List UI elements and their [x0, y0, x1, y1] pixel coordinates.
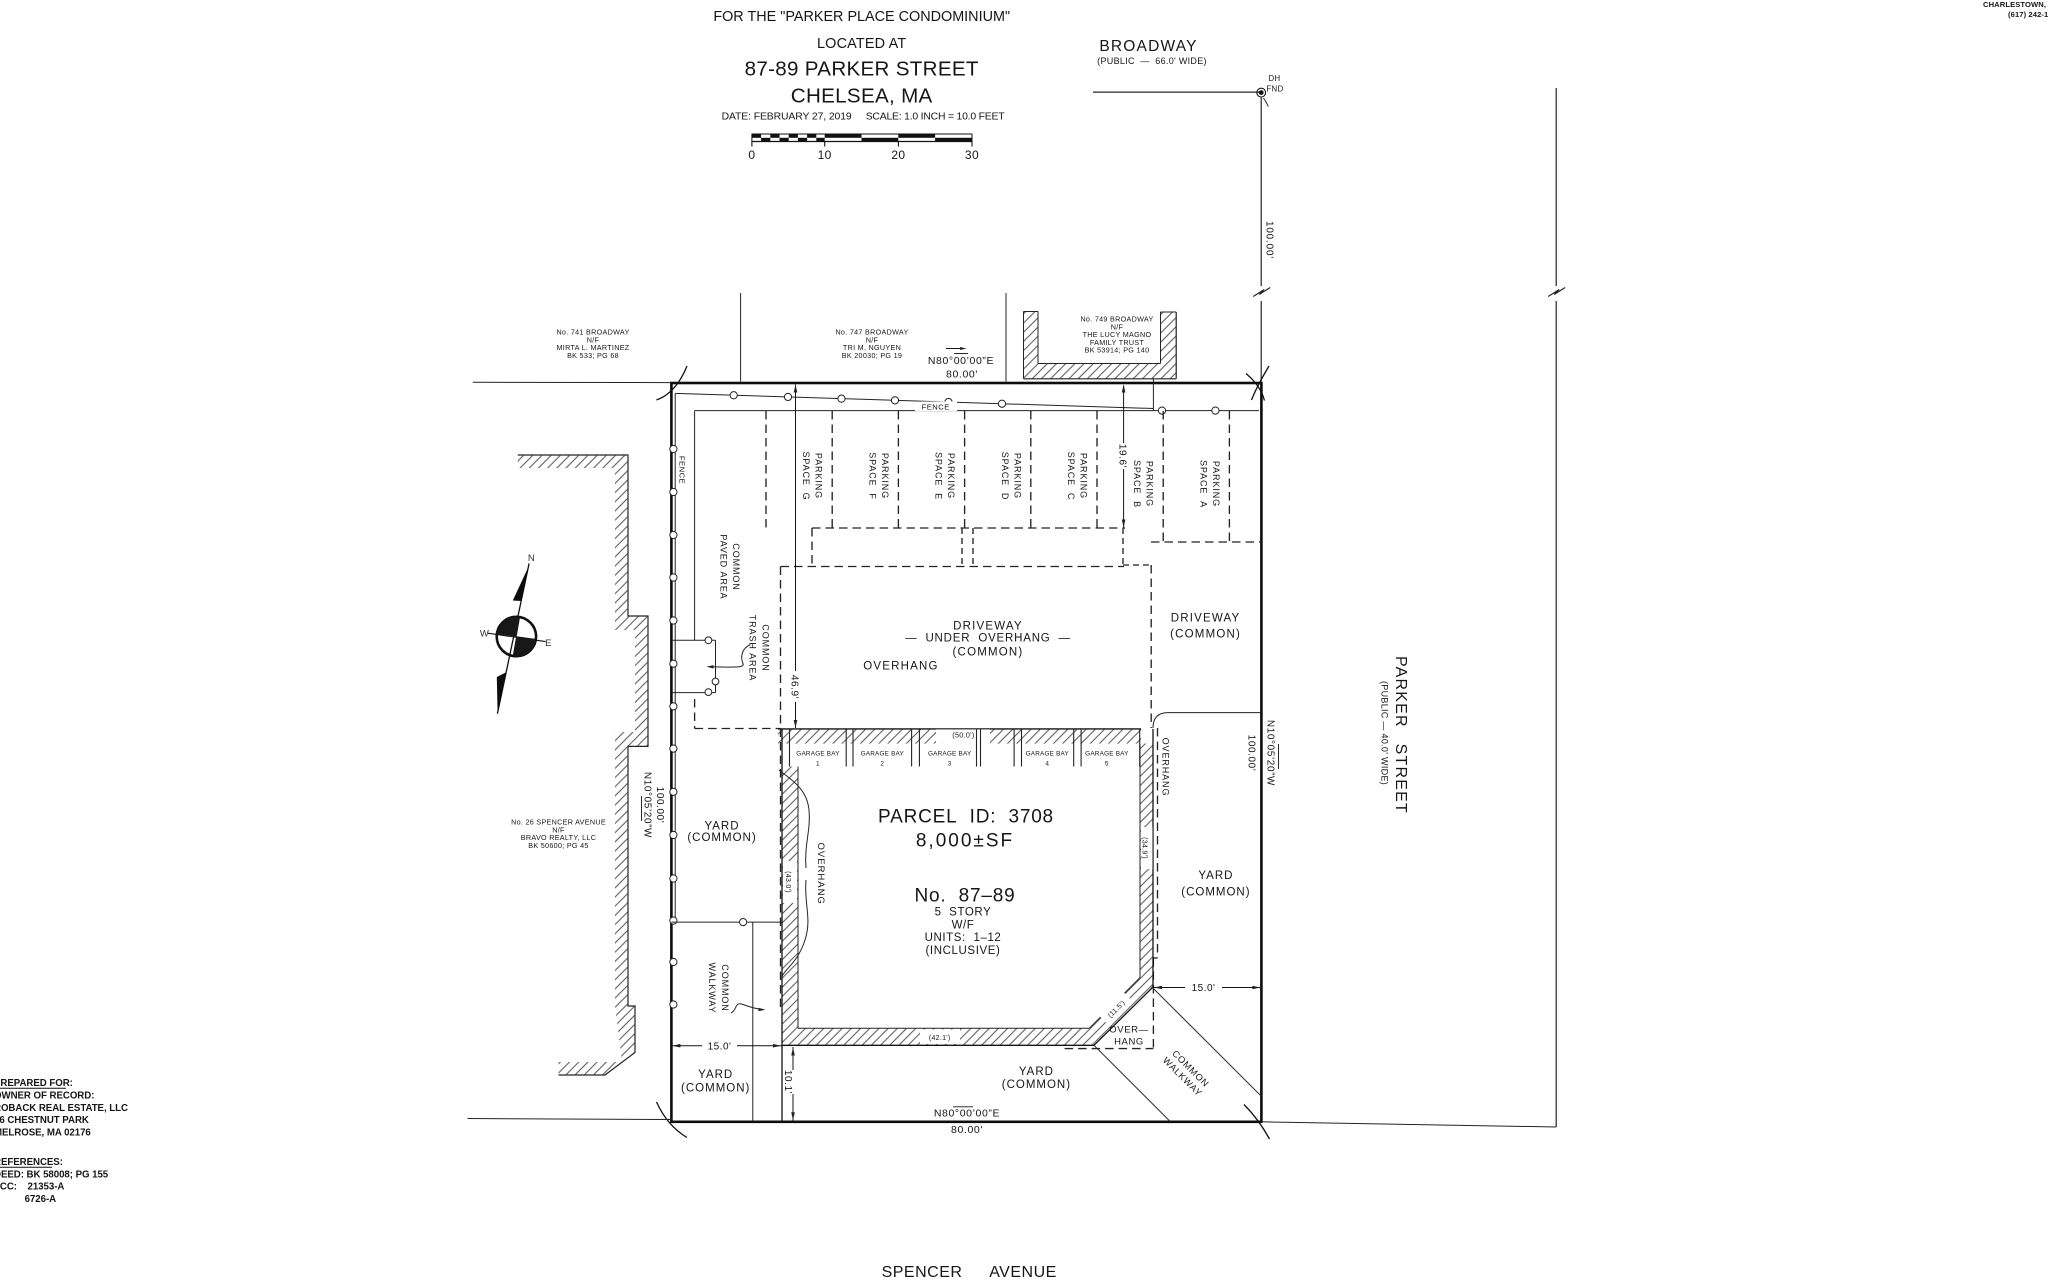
- svg-text:SPACE E: SPACE E: [934, 452, 944, 500]
- svg-text:N10°05’20”W: N10°05’20”W: [1265, 720, 1276, 786]
- svg-text:(COMMON): (COMMON): [1181, 887, 1250, 899]
- svg-text:SPENCER: SPENCER: [882, 1264, 963, 1280]
- svg-text:CHELSEA, MA: CHELSEA, MA: [791, 85, 933, 108]
- svg-text:26 CHESTNUT PARK: 26 CHESTNUT PARK: [0, 1115, 89, 1126]
- svg-text:AVENUE: AVENUE: [989, 1264, 1057, 1280]
- svg-text:COMMON: COMMON: [720, 964, 730, 1011]
- svg-text:DRIVEWAY: DRIVEWAY: [1171, 612, 1241, 624]
- svg-text:(42.1'): (42.1'): [929, 1035, 951, 1042]
- svg-text:80.00': 80.00': [951, 1124, 983, 1136]
- svg-text:COMMON: COMMON: [731, 543, 741, 590]
- svg-text:(COMMON): (COMMON): [1002, 1079, 1071, 1091]
- svg-text:YARD: YARD: [704, 820, 739, 832]
- svg-text:0: 0: [748, 148, 755, 162]
- svg-text:(COMMON): (COMMON): [687, 832, 756, 844]
- svg-text:(PUBLIC — 66.0' WIDE): (PUBLIC — 66.0' WIDE): [1097, 56, 1207, 66]
- svg-text:W/F: W/F: [952, 920, 975, 932]
- svg-text:OVERHANG: OVERHANG: [1161, 738, 1171, 797]
- svg-text:PAVED AREA: PAVED AREA: [719, 534, 729, 599]
- svg-text:(617) 242-1313: (617) 242-1313: [2008, 10, 2048, 19]
- svg-text:PARKING: PARKING: [1079, 453, 1089, 499]
- svg-text:SCALE: 1.0 INCH = 10.0 FEET: SCALE: 1.0 INCH = 10.0 FEET: [866, 112, 1006, 123]
- svg-text:(34.9'): (34.9'): [1141, 837, 1148, 859]
- svg-text:HANG: HANG: [1114, 1036, 1144, 1047]
- svg-text:GARAGE BAY: GARAGE BAY: [861, 751, 905, 758]
- svg-text:PARKING: PARKING: [946, 453, 956, 499]
- svg-text:15.0': 15.0': [1192, 983, 1216, 994]
- svg-text:CHARLESTOWN, MA: CHARLESTOWN, MA: [1983, 0, 2048, 9]
- svg-text:6726-A: 6726-A: [25, 1194, 57, 1205]
- svg-text:(COMMON): (COMMON): [953, 647, 1024, 659]
- svg-text:1: 1: [816, 761, 820, 768]
- svg-text:SPACE A: SPACE A: [1198, 460, 1208, 508]
- svg-text:YARD: YARD: [1019, 1066, 1054, 1078]
- svg-text:DRIVEWAY: DRIVEWAY: [953, 620, 1023, 632]
- svg-text:W: W: [480, 629, 489, 640]
- svg-text:3: 3: [948, 761, 952, 768]
- svg-text:REFERENCES:: REFERENCES:: [0, 1157, 63, 1168]
- svg-text:4: 4: [1045, 761, 1049, 768]
- svg-text:OVERHANG: OVERHANG: [863, 661, 938, 673]
- svg-text:PARKING: PARKING: [1211, 461, 1221, 507]
- svg-text:YARD: YARD: [698, 1069, 733, 1081]
- svg-text:— UNDER OVERHANG —: — UNDER OVERHANG —: [905, 633, 1071, 645]
- svg-text:YARD: YARD: [1198, 870, 1233, 882]
- svg-text:100.00': 100.00': [1263, 221, 1274, 259]
- svg-text:(INCLUSIVE): (INCLUSIVE): [926, 945, 1001, 957]
- svg-text:(43.0'): (43.0'): [784, 871, 791, 893]
- svg-text:PARKING: PARKING: [814, 453, 824, 499]
- svg-text:(50.0'): (50.0'): [952, 731, 974, 740]
- svg-text:DH: DH: [1268, 74, 1280, 83]
- svg-text:STREET: STREET: [1392, 744, 1409, 814]
- svg-text:LOCATED AT: LOCATED AT: [817, 36, 906, 52]
- svg-text:SPACE C: SPACE C: [1066, 452, 1076, 501]
- svg-text:N: N: [528, 553, 535, 564]
- svg-text:19.6': 19.6': [1117, 444, 1128, 468]
- svg-text:87-89 PARKER STREET: 87-89 PARKER STREET: [745, 58, 979, 81]
- svg-text:No. 87–89: No. 87–89: [915, 886, 1016, 907]
- svg-text:15.0': 15.0': [708, 1041, 732, 1052]
- svg-text:PARKING: PARKING: [1145, 461, 1155, 507]
- svg-text:5 STORY: 5 STORY: [935, 906, 992, 918]
- svg-text:30: 30: [965, 148, 979, 162]
- svg-text:SPACE B: SPACE B: [1132, 460, 1142, 508]
- svg-text:80.00': 80.00': [946, 369, 978, 381]
- svg-text:DATE: FEBRUARY 27, 2019: DATE: FEBRUARY 27, 2019: [722, 112, 852, 123]
- svg-text:2: 2: [880, 761, 884, 768]
- svg-text:DEED: BK 58008; PG 155: DEED: BK 58008; PG 155: [0, 1169, 109, 1180]
- svg-text:N80°00’00”E: N80°00’00”E: [934, 1108, 1000, 1120]
- svg-text:10: 10: [818, 148, 832, 162]
- svg-text:BK 533; PG 68: BK 533; PG 68: [567, 351, 619, 360]
- svg-text:GARAGE BAY: GARAGE BAY: [928, 751, 972, 758]
- svg-text:WALKWAY: WALKWAY: [707, 963, 717, 1014]
- svg-text:PREPARED FOR:: PREPARED FOR:: [0, 1078, 73, 1089]
- svg-text:BK 20030; PG 19: BK 20030; PG 19: [842, 351, 902, 360]
- svg-text:100.00': 100.00': [1246, 735, 1257, 772]
- svg-text:PARKING: PARKING: [880, 453, 890, 499]
- svg-text:GARAGE BAY: GARAGE BAY: [796, 751, 840, 758]
- svg-text:LCC: 21353-A: LCC: 21353-A: [0, 1182, 64, 1193]
- svg-text:SPACE G: SPACE G: [801, 451, 811, 500]
- svg-text:GARAGE BAY: GARAGE BAY: [1026, 751, 1070, 758]
- svg-text:8,000±SF: 8,000±SF: [916, 830, 1014, 851]
- svg-text:PARKER: PARKER: [1392, 656, 1409, 728]
- svg-text:FENCE: FENCE: [922, 403, 950, 412]
- svg-text:SPACE F: SPACE F: [867, 452, 877, 500]
- svg-text:N10°05’20”W: N10°05’20”W: [641, 772, 652, 838]
- svg-text:ROBACK REAL ESTATE, LLC: ROBACK REAL ESTATE, LLC: [0, 1103, 128, 1114]
- svg-text:COMMON: COMMON: [761, 624, 771, 671]
- svg-text:BROADWAY: BROADWAY: [1099, 38, 1197, 55]
- svg-text:(COMMON): (COMMON): [1170, 629, 1241, 641]
- svg-text:BK 53914; PG 140: BK 53914; PG 140: [1085, 346, 1150, 355]
- svg-text:N80°00’00”E: N80°00’00”E: [928, 355, 994, 367]
- svg-text:PARCEL ID: 3708: PARCEL ID: 3708: [878, 807, 1054, 828]
- svg-text:TRASH AREA: TRASH AREA: [748, 615, 758, 682]
- svg-text:OVERHANG: OVERHANG: [815, 843, 826, 905]
- svg-text:5: 5: [1105, 761, 1109, 768]
- svg-text:GARAGE BAY: GARAGE BAY: [1085, 751, 1129, 758]
- svg-text:E: E: [545, 638, 552, 649]
- svg-text:46.9': 46.9': [789, 675, 800, 699]
- svg-text:PARKING: PARKING: [1012, 453, 1022, 499]
- svg-text:OVER—: OVER—: [1109, 1025, 1148, 1036]
- svg-text:20: 20: [891, 148, 905, 162]
- svg-text:FENCE: FENCE: [678, 456, 687, 484]
- svg-text:100.00': 100.00': [654, 787, 665, 824]
- svg-text:(COMMON): (COMMON): [681, 1083, 750, 1095]
- svg-text:FOR THE "PARKER PLACE CONDOMIN: FOR THE "PARKER PLACE CONDOMINIUM": [713, 9, 1010, 25]
- svg-text:(PUBLIC — 40.0' WIDE): (PUBLIC — 40.0' WIDE): [1380, 681, 1390, 785]
- svg-text:10.1': 10.1': [782, 1070, 793, 1094]
- svg-text:MELROSE, MA 02176: MELROSE, MA 02176: [0, 1128, 91, 1139]
- svg-text:SPACE D: SPACE D: [1000, 452, 1010, 501]
- svg-text:OWNER OF RECORD:: OWNER OF RECORD:: [0, 1091, 94, 1102]
- svg-text:UNITS: 1–12: UNITS: 1–12: [925, 932, 1002, 944]
- svg-text:BK 50600; PG 45: BK 50600; PG 45: [528, 841, 588, 850]
- svg-text:FND: FND: [1266, 85, 1283, 94]
